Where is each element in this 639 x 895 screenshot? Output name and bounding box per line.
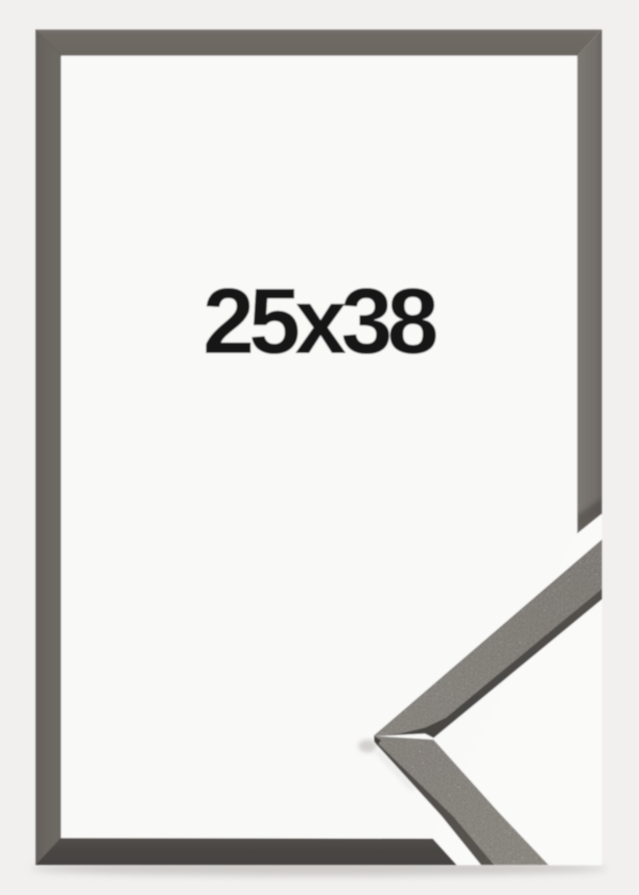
- svg-text:25x38: 25x38: [203, 269, 436, 373]
